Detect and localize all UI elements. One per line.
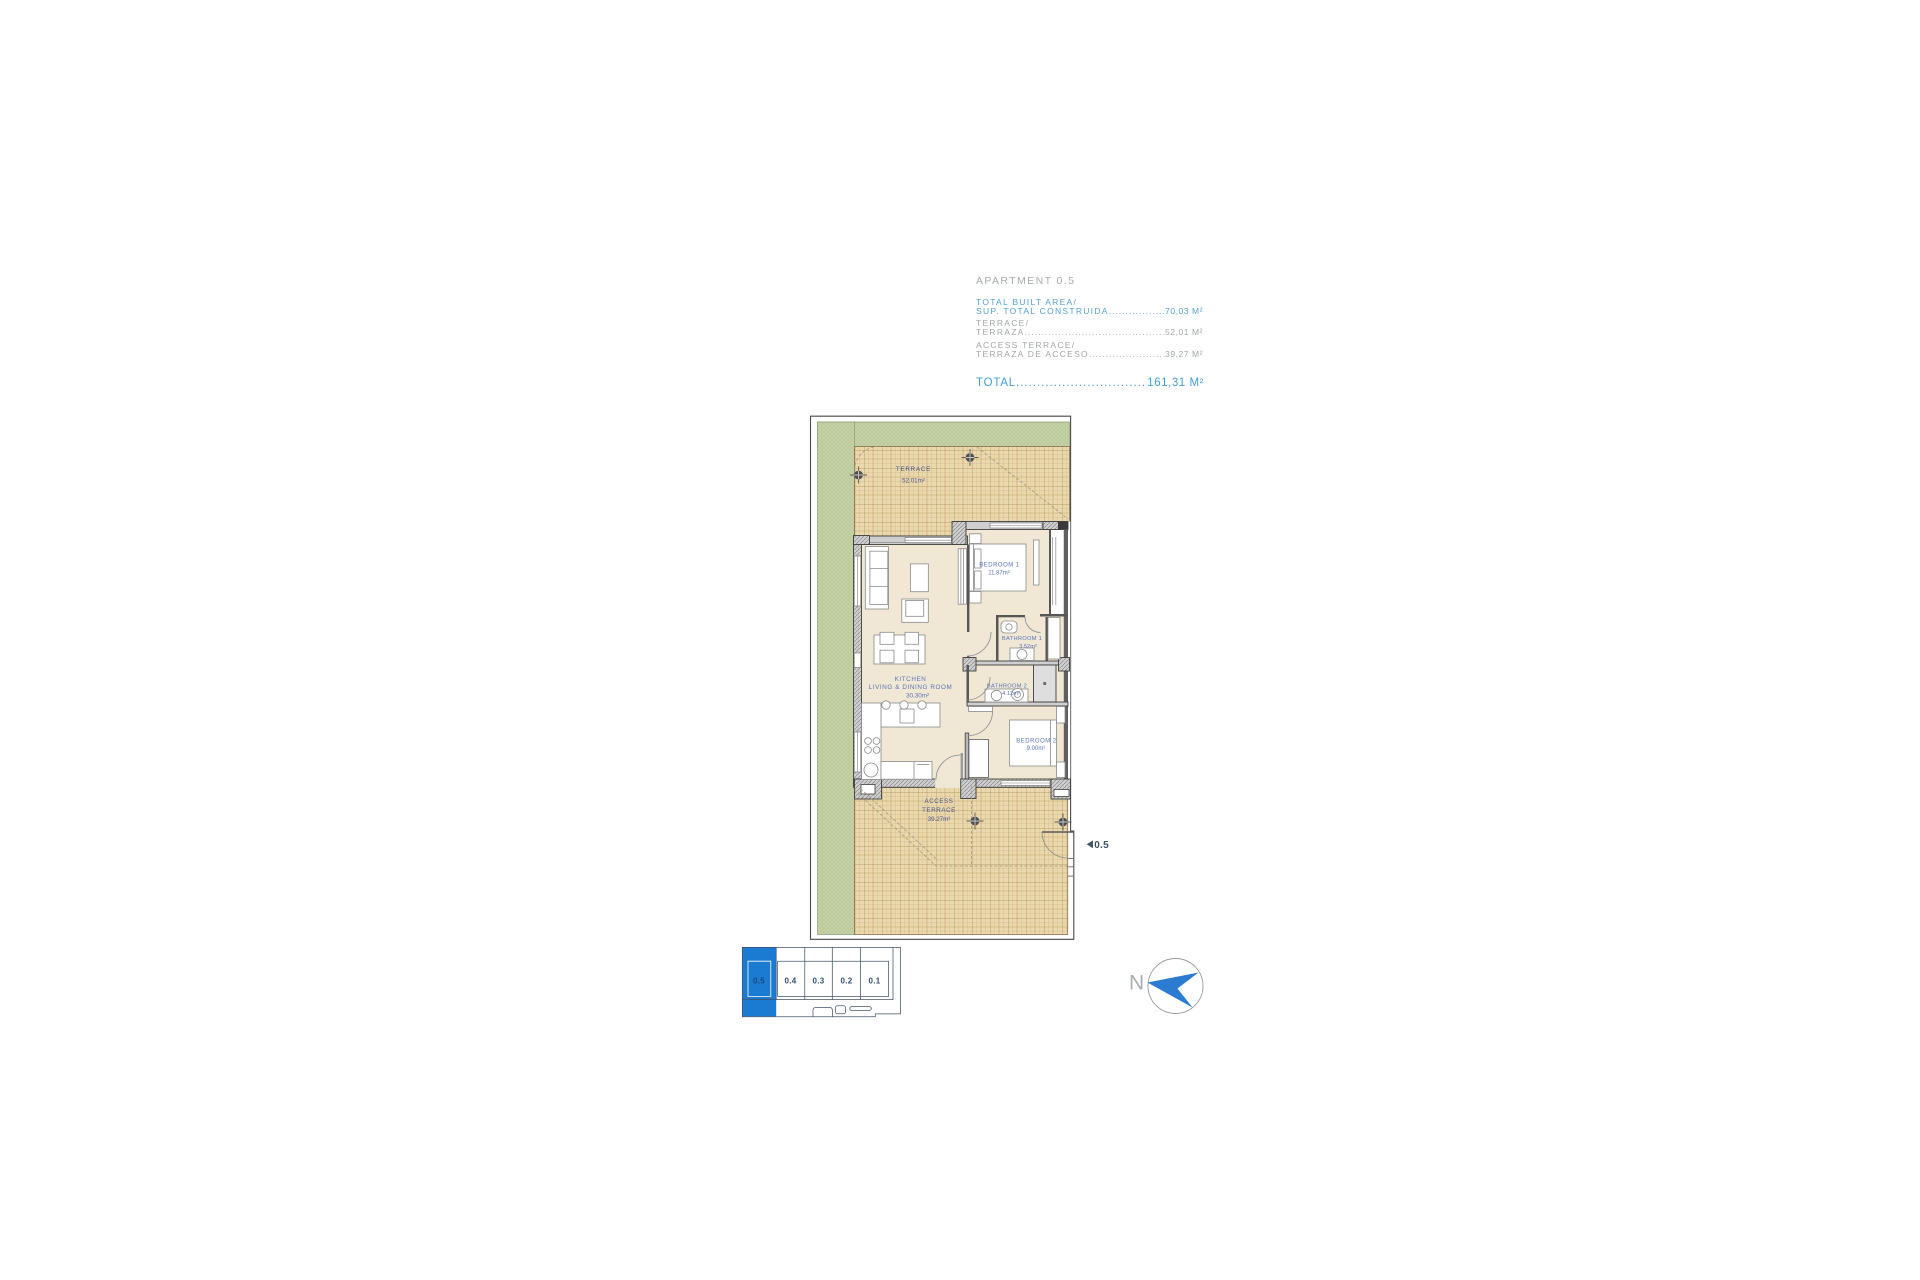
svg-text:0.4: 0.4 — [784, 977, 796, 986]
svg-text:LIVING & DINING ROOM: LIVING & DINING ROOM — [869, 684, 953, 691]
svg-text:KITCHEN: KITCHEN — [895, 676, 927, 683]
svg-text:ACCESS: ACCESS — [924, 798, 953, 805]
svg-text:BEDROOM 2: BEDROOM 2 — [1016, 739, 1057, 745]
svg-text:4.12m²: 4.12m² — [1002, 691, 1020, 697]
svg-text:0.5: 0.5 — [1094, 840, 1109, 851]
svg-text:BATHROOM 1: BATHROOM 1 — [1002, 636, 1042, 642]
svg-text:11.87m²: 11.87m² — [988, 571, 1010, 577]
svg-text:30.30m²: 30.30m² — [906, 693, 929, 700]
svg-text:0.3: 0.3 — [812, 977, 824, 986]
svg-text:BEDROOM 1: BEDROOM 1 — [979, 563, 1020, 569]
svg-text:52.01m²: 52.01m² — [902, 478, 925, 485]
svg-text:0.1: 0.1 — [868, 977, 880, 986]
svg-text:3.52m²: 3.52m² — [1019, 644, 1037, 650]
svg-text:BATHROOM 2: BATHROOM 2 — [987, 684, 1027, 690]
svg-text:N: N — [1129, 972, 1144, 995]
svg-text:39.27m²: 39.27m² — [928, 816, 951, 823]
svg-text:TERRACE: TERRACE — [922, 807, 956, 814]
svg-text:TERRACE: TERRACE — [896, 466, 931, 473]
svg-text:0.5: 0.5 — [753, 977, 765, 986]
svg-text:9.00m²: 9.00m² — [1027, 746, 1046, 752]
svg-text:0.2: 0.2 — [840, 977, 852, 986]
